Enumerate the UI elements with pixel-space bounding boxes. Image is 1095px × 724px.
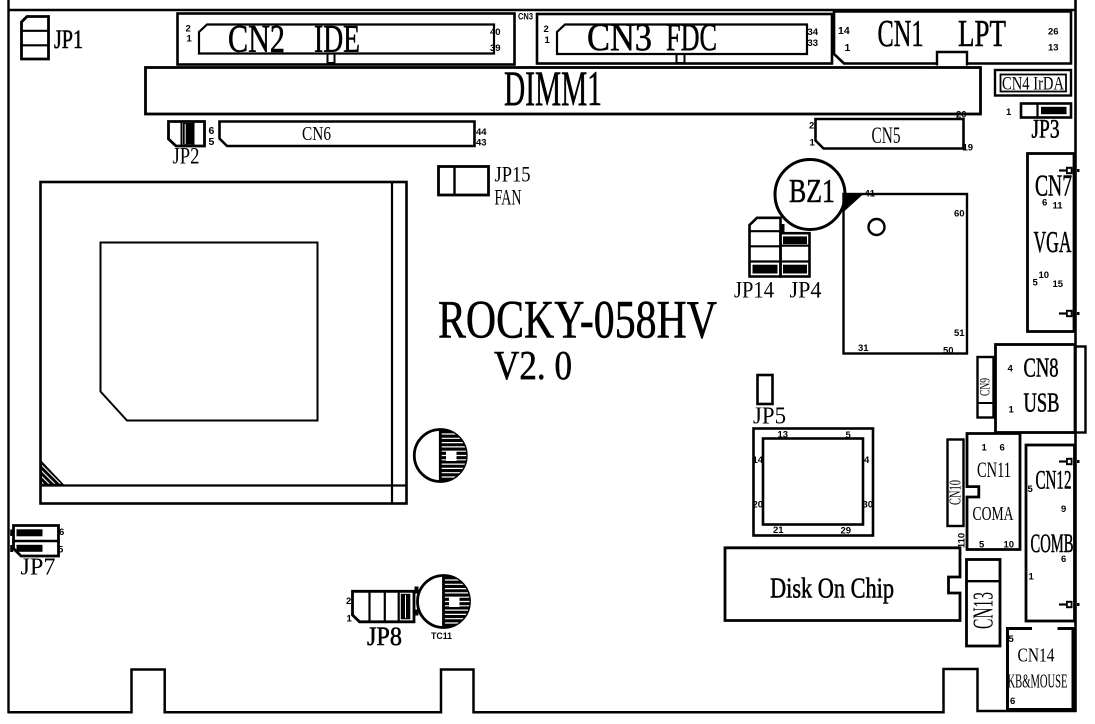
svg-text:31: 31	[858, 343, 869, 354]
svg-text:TC11: TC11	[431, 631, 453, 642]
svg-text:CN9: CN9	[978, 378, 994, 396]
svg-text:1: 1	[545, 35, 551, 46]
svg-text:FAN: FAN	[495, 185, 522, 210]
svg-text:CN5: CN5	[872, 123, 901, 148]
svg-text:20: 20	[956, 110, 967, 121]
svg-text:5: 5	[846, 430, 852, 441]
svg-text:CN6: CN6	[302, 123, 331, 145]
svg-text:CN8: CN8	[1024, 353, 1059, 383]
svg-text:COMA: COMA	[973, 503, 1014, 525]
svg-text:33: 33	[808, 38, 819, 49]
svg-text:9: 9	[1061, 504, 1066, 515]
svg-text:DIMM1: DIMM1	[504, 60, 602, 116]
svg-text:110: 110	[957, 533, 968, 548]
svg-text:6: 6	[1010, 696, 1015, 707]
svg-text:50: 50	[943, 346, 954, 357]
svg-text:13: 13	[778, 430, 789, 441]
svg-text:51: 51	[954, 328, 965, 339]
svg-text:2: 2	[544, 24, 549, 35]
svg-text:CN4 IrDA: CN4 IrDA	[1002, 74, 1064, 95]
svg-text:10: 10	[1039, 270, 1050, 281]
svg-text:6: 6	[59, 527, 64, 538]
svg-text:V2. 0: V2. 0	[494, 342, 572, 388]
svg-text:JP2: JP2	[173, 144, 200, 169]
svg-text:5: 5	[58, 545, 64, 556]
svg-text:29: 29	[841, 526, 852, 537]
svg-text:21: 21	[773, 525, 784, 536]
svg-text:1: 1	[1029, 572, 1035, 583]
svg-text:6: 6	[1042, 198, 1047, 209]
svg-text:CN2: CN2	[228, 18, 285, 61]
svg-text:JP4: JP4	[790, 278, 822, 303]
svg-text:BZ1: BZ1	[789, 173, 835, 210]
svg-text:6: 6	[1061, 554, 1066, 565]
svg-text:JP7: JP7	[21, 555, 56, 581]
svg-text:CN11: CN11	[977, 457, 1011, 482]
svg-text:USB: USB	[1024, 388, 1060, 418]
svg-text:1: 1	[845, 42, 851, 54]
svg-text:IDE: IDE	[314, 18, 360, 61]
svg-text:1: 1	[810, 138, 816, 149]
svg-text:6: 6	[1000, 443, 1005, 454]
svg-text:44: 44	[476, 127, 487, 138]
svg-text:14: 14	[838, 25, 850, 37]
svg-text:4: 4	[1008, 364, 1014, 375]
svg-text:26: 26	[1048, 27, 1059, 38]
svg-text:4: 4	[864, 455, 870, 466]
svg-text:JP5: JP5	[753, 404, 786, 430]
svg-text:JP1: JP1	[54, 25, 83, 54]
svg-text:13: 13	[1048, 43, 1059, 54]
svg-text:5: 5	[979, 540, 985, 551]
svg-text:14: 14	[753, 455, 764, 466]
svg-text:10: 10	[1004, 540, 1015, 551]
svg-text:CN14: CN14	[1018, 645, 1055, 667]
svg-text:JP15: JP15	[495, 162, 531, 187]
svg-text:1: 1	[347, 614, 353, 625]
svg-text:60: 60	[954, 209, 965, 220]
svg-text:1: 1	[1009, 405, 1015, 416]
svg-text:COMB: COMB	[1031, 529, 1074, 558]
svg-text:5: 5	[209, 136, 215, 148]
svg-text:43: 43	[476, 138, 487, 149]
svg-text:30: 30	[863, 500, 874, 511]
svg-text:CN3: CN3	[587, 16, 652, 59]
svg-text:LPT: LPT	[958, 13, 1006, 55]
svg-text:15: 15	[1053, 279, 1064, 290]
svg-text:KB&MOUSE: KB&MOUSE	[1008, 671, 1068, 693]
svg-text:2: 2	[346, 596, 351, 607]
svg-text:1: 1	[187, 34, 193, 45]
svg-text:1: 1	[1006, 107, 1012, 118]
svg-text:CN3: CN3	[518, 12, 533, 23]
svg-text:40: 40	[490, 27, 501, 38]
svg-text:5: 5	[1028, 484, 1034, 495]
svg-text:JP14: JP14	[734, 278, 774, 303]
svg-text:ROCKY-058HV: ROCKY-058HV	[438, 290, 717, 350]
svg-text:5: 5	[1009, 634, 1015, 645]
svg-text:CN13: CN13	[968, 592, 1000, 629]
svg-text:CN10: CN10	[946, 480, 965, 505]
svg-text:41: 41	[865, 189, 876, 200]
svg-text:19: 19	[963, 143, 974, 154]
svg-text:FDC: FDC	[666, 16, 717, 59]
svg-text:34: 34	[808, 27, 819, 38]
svg-text:1: 1	[982, 443, 988, 454]
svg-text:VGA: VGA	[1034, 224, 1072, 259]
svg-text:39: 39	[490, 43, 501, 54]
svg-text:JP8: JP8	[367, 622, 402, 651]
svg-text:Disk On Chip: Disk On Chip	[770, 574, 894, 605]
svg-text:JP3: JP3	[1032, 115, 1060, 144]
svg-text:CN12: CN12	[1036, 466, 1072, 495]
svg-text:CN1: CN1	[878, 13, 924, 55]
svg-text:2: 2	[809, 121, 814, 132]
svg-text:11: 11	[1053, 201, 1064, 212]
svg-text:20: 20	[753, 500, 764, 511]
